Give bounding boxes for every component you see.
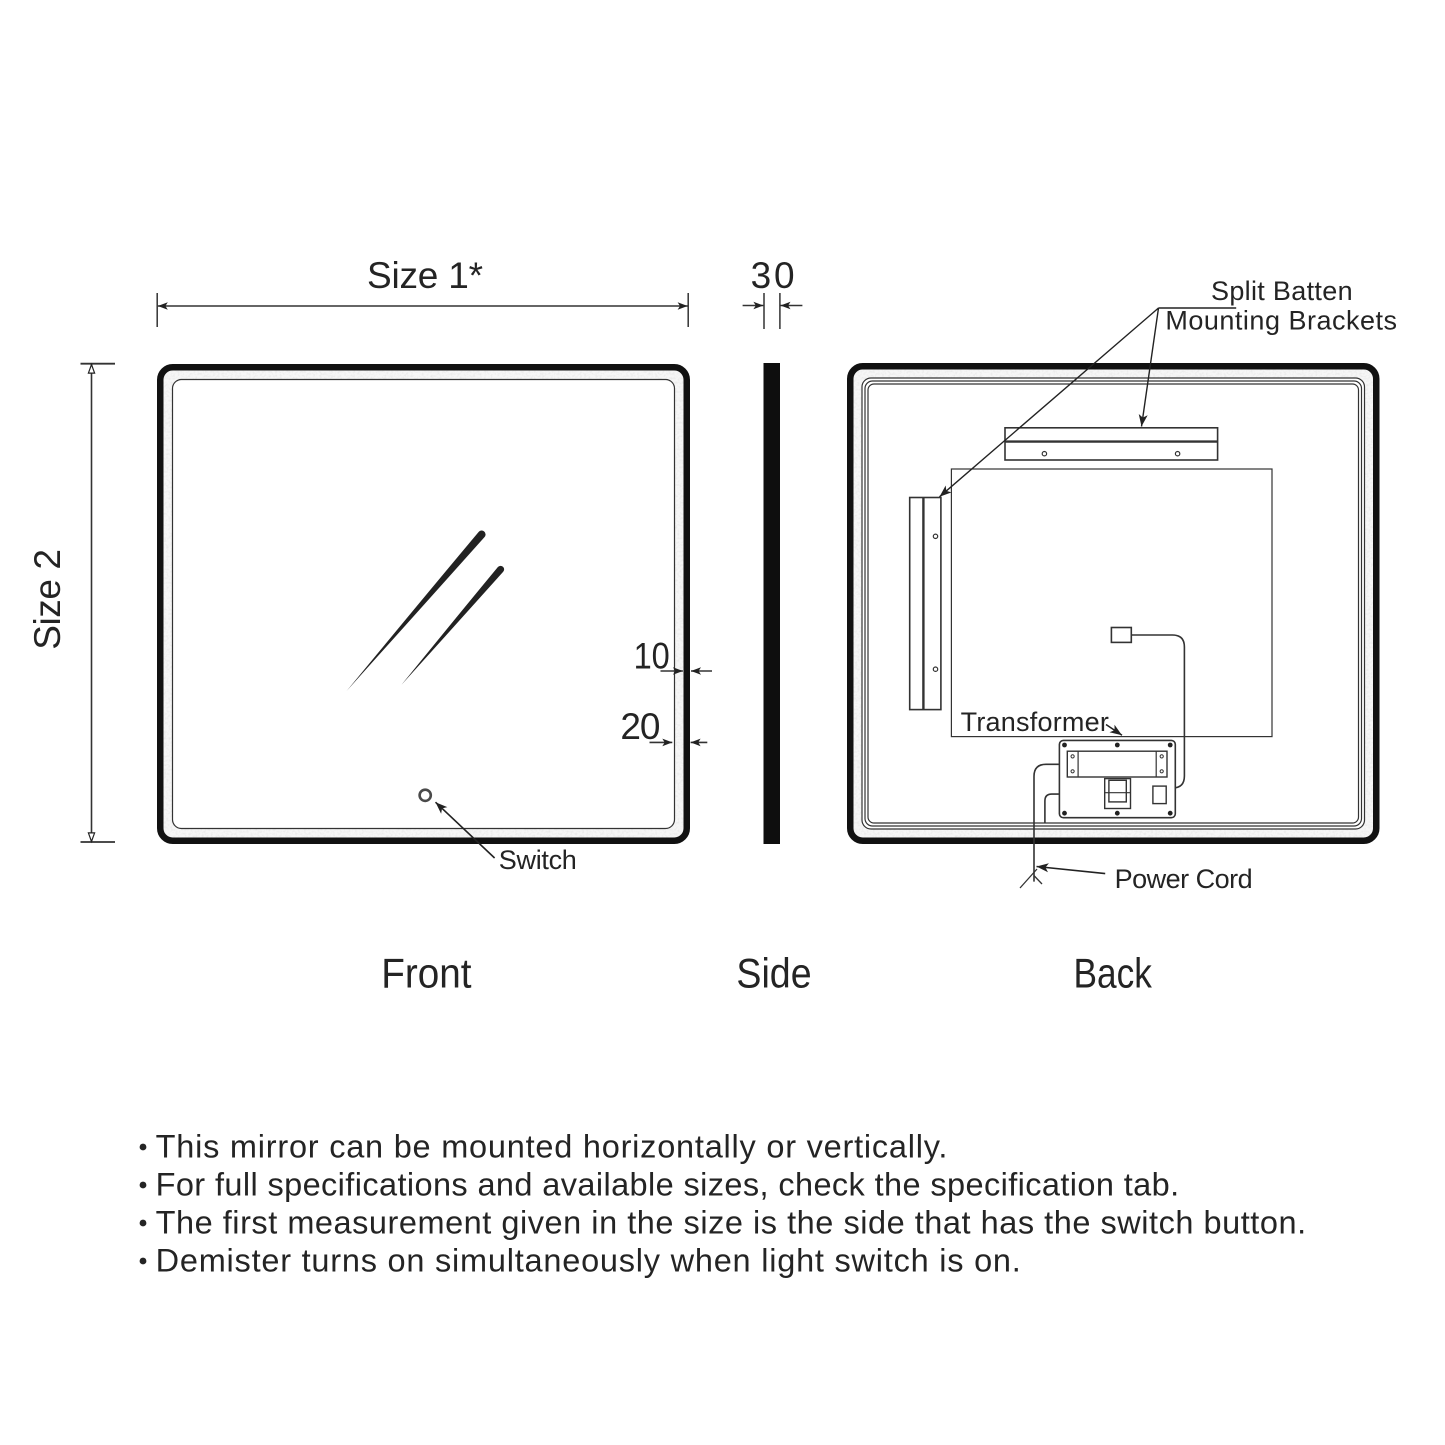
svg-text:Size 1*: Size 1*	[367, 255, 483, 296]
svg-text:Transformer: Transformer	[961, 707, 1109, 737]
svg-text:20: 20	[620, 706, 660, 747]
svg-text:For full specifications and av: For full specifications and available si…	[156, 1167, 1180, 1203]
svg-text:Split Batten: Split Batten	[1211, 276, 1353, 306]
svg-text:Size 2: Size 2	[27, 549, 68, 650]
svg-text:The first measurement given in: The first measurement given in the size …	[156, 1205, 1307, 1241]
svg-text:Side: Side	[736, 951, 811, 997]
svg-text:Front: Front	[381, 949, 471, 997]
svg-text:Switch: Switch	[499, 845, 577, 875]
svg-text:Demister turns on simultaneous: Demister turns on simultaneously when li…	[156, 1243, 1021, 1279]
svg-text:Power Cord: Power Cord	[1115, 864, 1253, 894]
svg-text:Back: Back	[1074, 951, 1153, 998]
svg-text:Mounting Brackets: Mounting Brackets	[1165, 306, 1397, 336]
svg-text:This mirror can be mounted hor: This mirror can be mounted horizontally …	[156, 1129, 948, 1165]
